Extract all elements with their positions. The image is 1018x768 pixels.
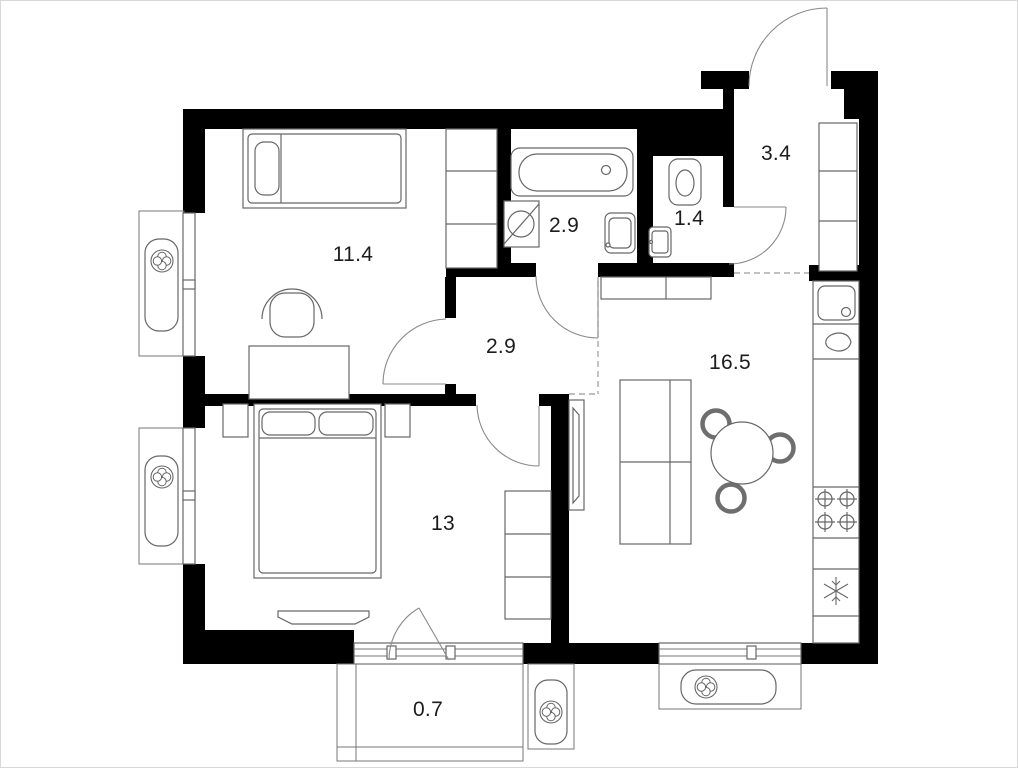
- floor-plan: 11.4 2.9 1.4 3.4 2.9 16.5 13 0.7: [0, 0, 1018, 768]
- dining-table: [711, 422, 773, 484]
- ac-fan-icon: [151, 250, 173, 272]
- dining-set: [703, 411, 794, 512]
- room-area-label-bedroom-2: 13: [431, 512, 455, 536]
- kitchen-sink: [818, 286, 855, 320]
- entry-door: [749, 8, 827, 86]
- room-area-label-entrance-hall: 3.4: [761, 142, 791, 166]
- desk: [249, 346, 349, 399]
- bedroom-2-wardrobe: [505, 491, 551, 619]
- washing-machine: [504, 201, 539, 247]
- nightstand-right: [385, 404, 410, 437]
- sofa: [620, 380, 691, 544]
- bedroom-2-door: [477, 405, 539, 466]
- desk-chair: [262, 289, 322, 337]
- tv: [569, 400, 584, 510]
- kitchen-living-furniture: [569, 277, 859, 643]
- ac-fan-icon: [540, 701, 562, 723]
- sideboard: [601, 277, 711, 299]
- bathtub: [511, 148, 633, 196]
- room-area-label-balcony: 0.7: [413, 698, 443, 722]
- balcony-shell: [337, 664, 574, 761]
- room-area-label-kitchen-living-room: 16.5: [709, 351, 751, 375]
- kitchen-window: [659, 643, 801, 709]
- bathroom-sink: [605, 213, 635, 253]
- wc-sink: [649, 227, 671, 257]
- bathroom-door: [536, 276, 598, 338]
- hall-furniture: [819, 123, 857, 271]
- ac-fan-icon: [695, 676, 717, 698]
- doors: [383, 8, 827, 660]
- room-area-label-bedroom-1: 11.4: [333, 243, 374, 267]
- shelf: [278, 611, 369, 624]
- wc-door: [729, 207, 786, 264]
- room-area-label-corridor: 2.9: [486, 335, 516, 359]
- room-area-label-bathroom: 2.9: [549, 214, 579, 238]
- single-bed: [243, 129, 406, 208]
- balcony-window: [354, 643, 523, 664]
- toilet: [669, 159, 701, 205]
- floor-plan-drawing: [1, 1, 1018, 768]
- double-bed: [254, 404, 381, 578]
- bedroom-2-furniture: [223, 404, 551, 624]
- wardrobe: [446, 129, 497, 268]
- nightstand-left: [223, 404, 248, 437]
- chair: [718, 485, 745, 512]
- ac-fan-icon: [151, 466, 173, 488]
- window-bedroom-2: [139, 428, 195, 564]
- hall-wardrobe: [819, 123, 857, 271]
- room-area-label-wc: 1.4: [674, 207, 704, 231]
- window-bedroom-1: [139, 211, 195, 356]
- faucet-icon: [826, 333, 851, 351]
- bedroom-1-door: [383, 319, 446, 384]
